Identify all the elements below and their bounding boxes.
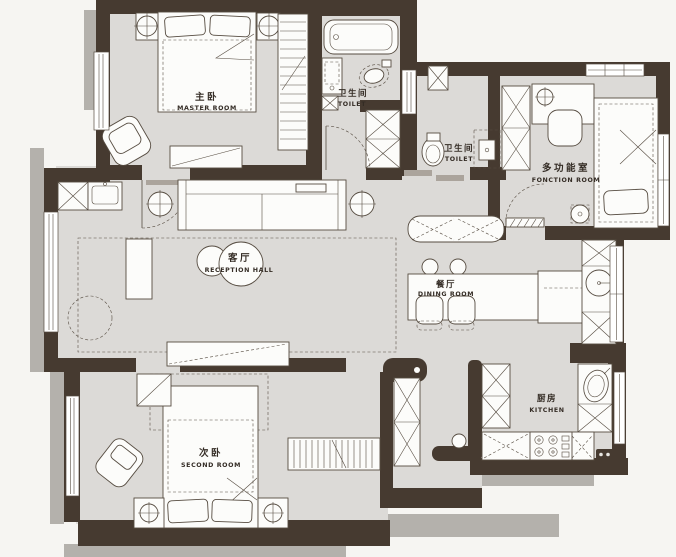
bath-hall-label-en: TOILET (445, 156, 473, 163)
storage-cabinet (502, 86, 530, 170)
window (610, 246, 623, 342)
window (94, 52, 109, 130)
stool (450, 259, 466, 275)
pillow (210, 15, 251, 37)
pillow (167, 499, 208, 523)
shaft-cabinet (366, 110, 400, 168)
bathtub (324, 20, 398, 54)
fridge-cabinet (482, 364, 510, 428)
kitchen-label-en: KITCHEN (529, 407, 564, 414)
floor-plan-page: 主卧 MASTER ROOM 卫生间 TOILET 卫生间 TOILET 多功能… (0, 0, 676, 557)
window (44, 212, 58, 332)
bath-main-label-zh: 卫生间 (338, 88, 368, 99)
kitchen-label-zh: 厨房 (537, 393, 557, 404)
switch-box (596, 449, 614, 460)
window (658, 134, 669, 226)
pillow (212, 499, 253, 522)
floor-plan: 主卧 MASTER ROOM 卫生间 TOILET 卫生间 TOILET 多功能… (0, 0, 676, 557)
stool (452, 434, 466, 448)
laundry-unit (58, 182, 122, 210)
tv-cabinet (167, 342, 289, 366)
bath-main-label-en: TOILET (338, 101, 366, 108)
desk-chair (548, 110, 582, 146)
wardrobe (278, 14, 308, 150)
stool (571, 205, 589, 223)
multi-room-label-en: FONCTION ROOM (532, 177, 601, 184)
label-circle (219, 242, 263, 286)
hallway-cabinet (394, 378, 420, 466)
sofa-tray (296, 184, 326, 192)
dining-room-label-en: DINING ROOM (418, 291, 474, 298)
second-room-label-zh: 次卧 (199, 447, 223, 459)
entry-bench (408, 216, 504, 242)
sofa (178, 180, 346, 230)
stool (422, 259, 438, 275)
bookshelf (288, 438, 380, 470)
pillow (164, 15, 205, 38)
master-room-label-zh: 主卧 (195, 91, 219, 103)
window (586, 64, 644, 76)
single-bed (594, 98, 658, 228)
kitchen-door-panel (432, 446, 478, 461)
kitchen-sink (578, 364, 612, 432)
folding-door (137, 374, 171, 406)
window (66, 396, 79, 496)
master-room-label-en: MASTER ROOM (177, 105, 237, 112)
bath-hall-label-zh: 卫生间 (444, 143, 474, 154)
stove (530, 432, 572, 460)
side-cabinet (126, 239, 152, 299)
window (402, 70, 416, 114)
pillow (603, 189, 648, 215)
dining-room-label-zh: 餐厅 (435, 279, 456, 290)
second-room-label-en: SECOND ROOM (181, 462, 241, 469)
living-room-label-zh: 客厅 (227, 252, 252, 264)
multi-room-label-zh: 多功能室 (542, 162, 590, 174)
living-room-label-en: RECEPTION HALL (205, 267, 274, 274)
window (614, 372, 625, 444)
